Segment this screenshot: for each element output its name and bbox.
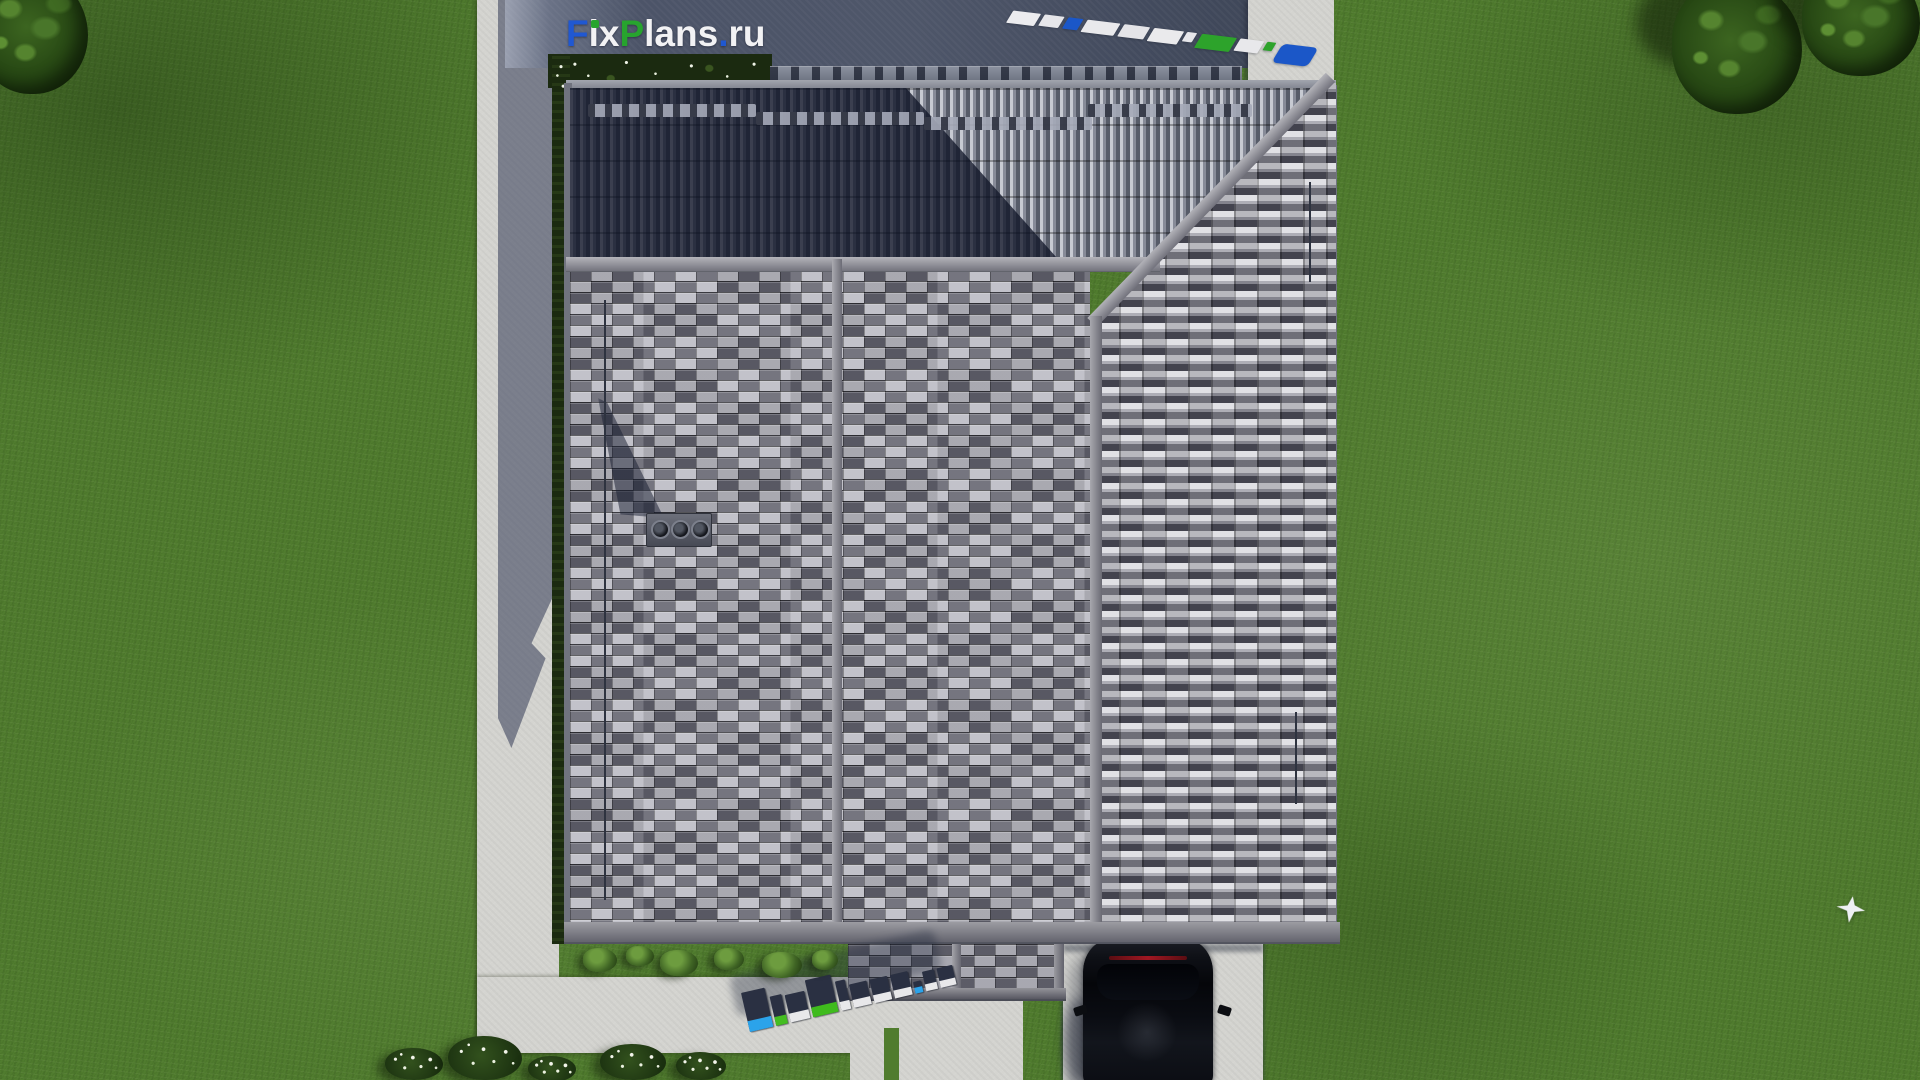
car-roof-shine — [1112, 1002, 1182, 1062]
ground-logo-letter — [936, 965, 956, 988]
ground-logo-letter — [890, 971, 913, 998]
watermark-block — [1147, 28, 1185, 45]
roof-ridge — [566, 257, 1160, 272]
watermark-block — [1006, 11, 1041, 27]
flower-bush — [676, 1052, 726, 1080]
roof-hip-vertical — [1090, 316, 1102, 924]
car-mirror-right — [1217, 1004, 1232, 1017]
site-logo-segment: i — [589, 13, 599, 54]
lightning-rod — [1309, 182, 1311, 282]
roof-divider — [832, 259, 842, 944]
ground-logo-letter — [869, 976, 892, 1003]
porch-slab — [850, 997, 1023, 1080]
car-brake-light — [1109, 956, 1187, 960]
shrub — [583, 948, 617, 972]
site-logo-segment: . — [718, 13, 728, 54]
flower-bush — [385, 1048, 443, 1080]
site-logo-text: FixPlans.ru — [566, 13, 765, 54]
chimney-vent — [691, 520, 710, 539]
flower-bush — [600, 1044, 666, 1080]
downpipe-line — [604, 300, 606, 900]
shrub — [762, 952, 802, 978]
watermark-block — [1233, 38, 1264, 53]
site-logo-segment: F — [566, 13, 589, 54]
shrub — [660, 950, 698, 976]
shrub — [714, 948, 744, 970]
grass-wedge — [884, 1028, 899, 1080]
chimney — [646, 513, 712, 547]
black-car — [1072, 932, 1232, 1080]
ground-logo-letter — [805, 975, 839, 1018]
shrub — [626, 946, 654, 966]
watermark-block — [1262, 42, 1276, 52]
chimney-vent — [671, 520, 690, 539]
house-roof — [564, 80, 1340, 946]
snow-guard-bar — [924, 117, 1092, 130]
site-logo-segment: lans — [644, 13, 718, 54]
chimney-vent — [651, 520, 670, 539]
watermark-block — [1062, 17, 1084, 30]
shrub — [812, 950, 838, 970]
aerial-scene: FixPlans.ru — [0, 0, 1920, 1080]
watermark-block — [1117, 24, 1150, 39]
ground-logo-letter — [849, 980, 872, 1007]
watermark-block — [1194, 34, 1237, 52]
snow-guard-bar — [1088, 104, 1252, 117]
site-logo-segment: x — [599, 13, 620, 54]
porch-roof-edge — [1054, 944, 1064, 992]
site-logo-segment: P — [619, 13, 644, 54]
snow-guard-bar — [756, 112, 924, 125]
watermark-block — [1182, 32, 1198, 43]
lightning-rod — [1295, 712, 1297, 804]
ground-logo-letter — [913, 980, 923, 993]
site-logo: FixPlans.ru — [566, 12, 765, 56]
ground-logo-letter — [922, 969, 938, 991]
site-logo-segment: ru — [728, 13, 765, 54]
bird — [1833, 893, 1868, 927]
snow-guard-bar — [588, 104, 756, 117]
flower-bush — [528, 1056, 576, 1080]
car-rear-window — [1097, 964, 1199, 1000]
flower-bush — [448, 1036, 522, 1080]
ground-logo-letter — [785, 991, 811, 1023]
watermark-block — [1038, 14, 1065, 28]
roof-slope-south — [570, 270, 1090, 924]
watermark-block — [1080, 20, 1120, 36]
